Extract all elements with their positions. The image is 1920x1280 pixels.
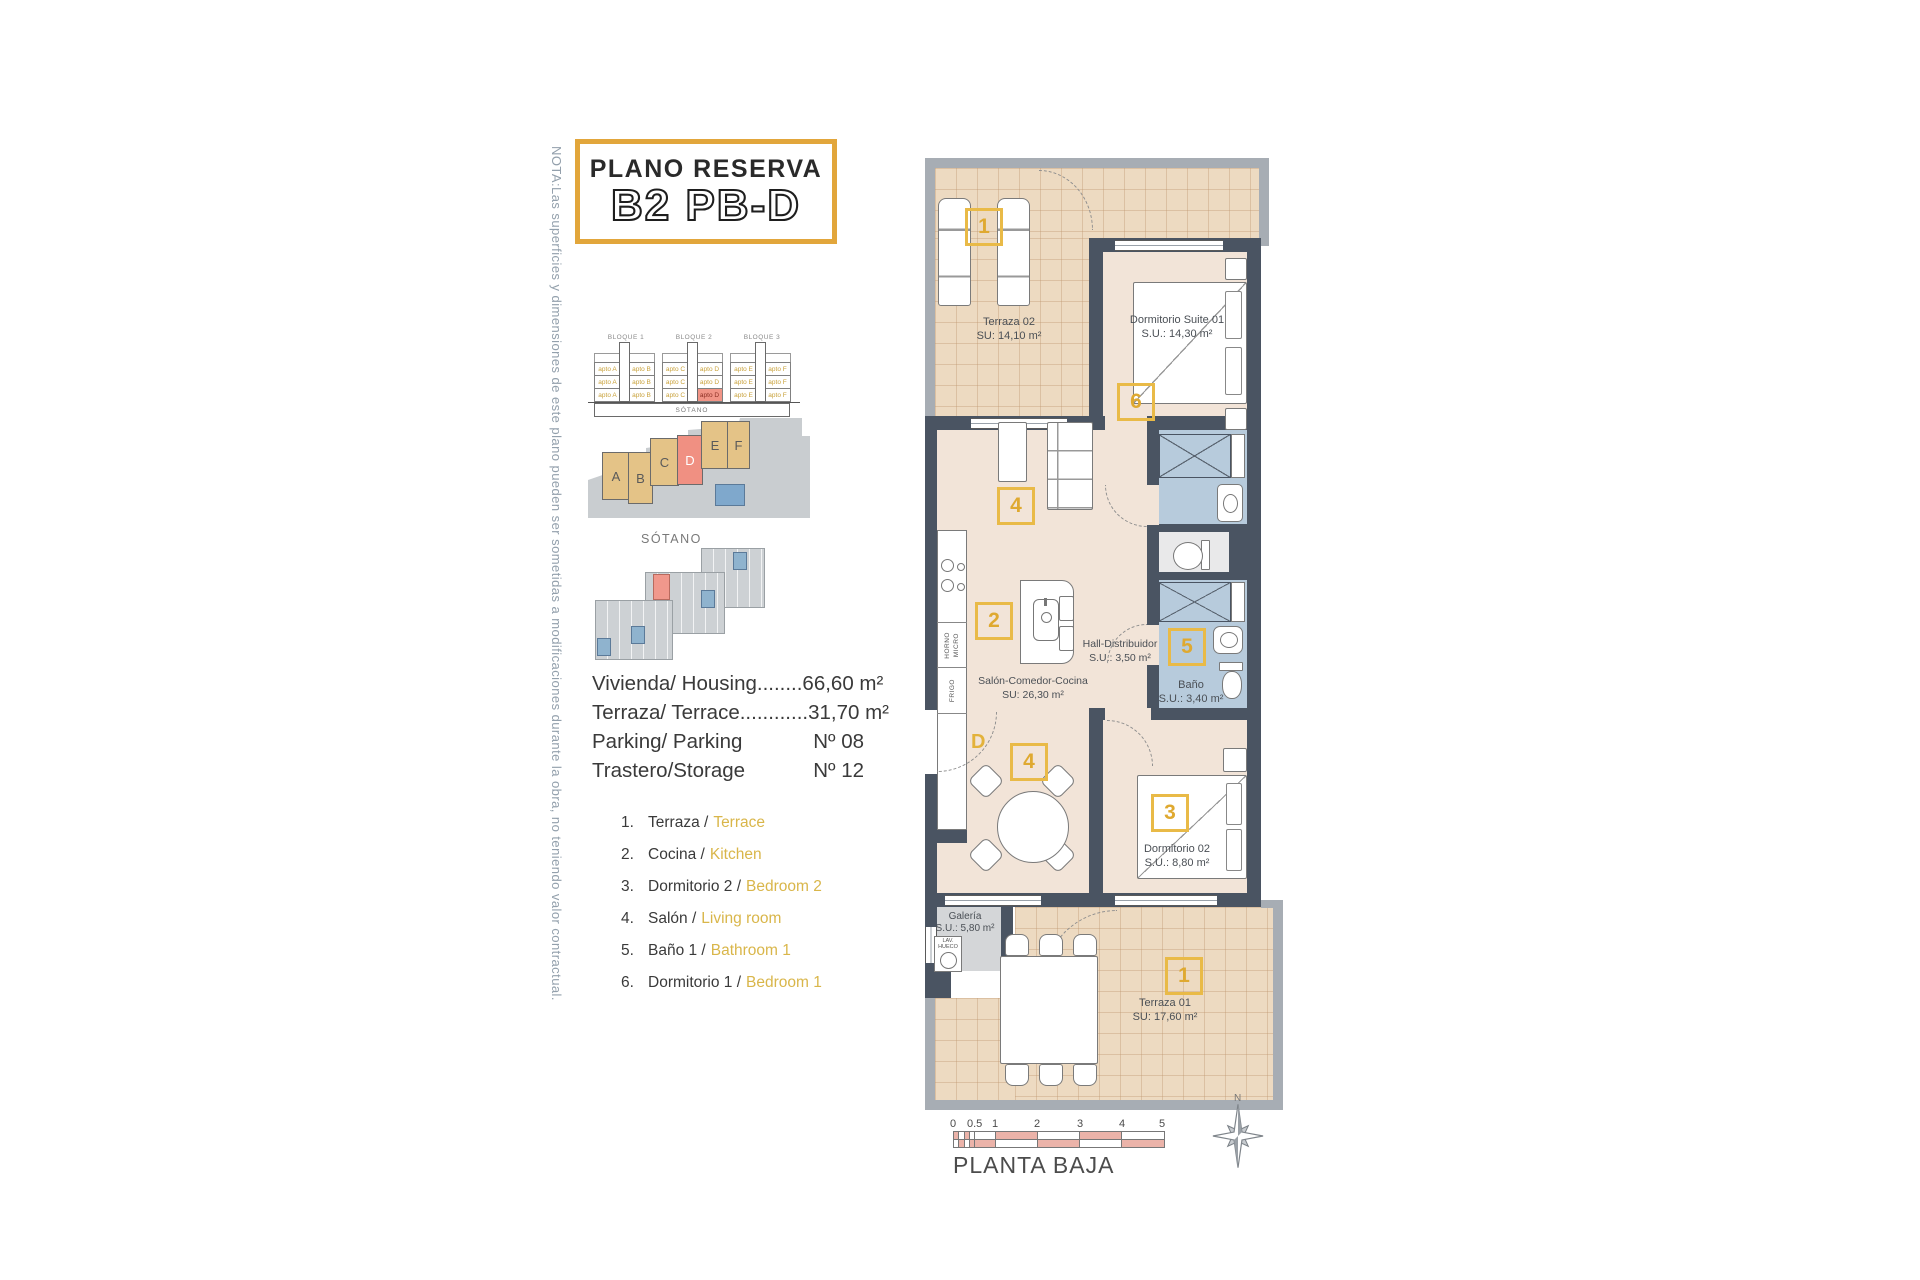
room-area: S.U.: 14,30 m² — [1127, 327, 1227, 341]
legend-number: 1. — [621, 814, 648, 832]
apto-cell: apto E — [730, 375, 757, 389]
chair — [1005, 934, 1029, 956]
marker-terraza: 1 — [965, 208, 1003, 246]
apto-cell: apto E — [730, 388, 757, 402]
bar-stool — [1059, 596, 1074, 621]
basin — [1223, 494, 1238, 513]
island-sink — [1033, 599, 1059, 641]
stair-tower — [755, 342, 766, 402]
stair-tower — [687, 342, 698, 402]
apto-cell: apto A — [594, 375, 621, 389]
apto-cell: apto B — [628, 362, 655, 376]
legend-en: Living room — [701, 910, 781, 928]
room-legend: 1. Terraza / Terrace 2. Cocina / Kitchen… — [621, 814, 822, 1006]
marker-dormitorio1: 6 — [1117, 383, 1155, 421]
legend-en: Bedroom 1 — [746, 974, 822, 992]
room-name: Salón-Comedor-Cocina — [973, 675, 1093, 689]
site-block-a: A — [602, 452, 630, 500]
basin — [1220, 632, 1238, 648]
room-name: Terraza 01 — [1113, 996, 1217, 1010]
scale-bar-graphic — [953, 1131, 1165, 1148]
scale-tick: 5 — [1159, 1118, 1165, 1130]
elevation-bloque-3: BLOQUE 3 apto E apto E apto E apto F apt… — [730, 334, 794, 402]
elevation-row: BLOQUE 1 apto A apto A apto A apto B apt… — [588, 334, 800, 402]
marker-terraza01: 1 — [1165, 957, 1203, 995]
apto-cell: apto F — [764, 362, 791, 376]
legend-item-bano1: 5. Baño 1 / Bathroom 1 — [621, 942, 822, 960]
site-block-e: E — [701, 421, 729, 469]
legend-en: Bathroom 1 — [711, 942, 791, 960]
sofa — [1047, 422, 1093, 510]
room-area: SU: 14,10 m² — [959, 329, 1059, 343]
legend-es: Salón / — [648, 910, 696, 928]
elevation-diagram: BLOQUE 1 apto A apto A apto A apto B apt… — [588, 334, 800, 417]
legend-en: Kitchen — [710, 846, 762, 864]
window — [945, 895, 1041, 906]
room-area: SU: 17,60 m² — [1113, 1010, 1217, 1024]
pillow — [1225, 291, 1242, 339]
sotano-plan: SÓTANO — [583, 528, 815, 668]
scale-ticks: 0 0.5 1 2 3 4 5 — [953, 1118, 1165, 1131]
scale-tick: 2 — [1034, 1118, 1040, 1130]
legend-number: 4. — [621, 910, 648, 928]
apto-cell: apto A — [594, 388, 621, 402]
stairs-block — [701, 590, 715, 608]
legend-item-terraza: 1. Terraza / Terrace — [621, 814, 822, 832]
room-area: S.U.: 8,80 m² — [1125, 856, 1229, 870]
apto-cell: apto B — [628, 388, 655, 402]
room-name: Baño — [1141, 678, 1241, 692]
room-area: S.U.: 5,80 m² — [929, 923, 1001, 935]
burner — [957, 563, 965, 571]
room-name: Dormitorio Suite 01 — [1127, 313, 1227, 327]
legend-es: Baño 1 / — [648, 942, 706, 960]
room-label-terraza01: Terraza 01 SU: 17,60 m² — [1113, 996, 1217, 1025]
burner — [941, 559, 954, 572]
legend-en: Bedroom 2 — [746, 878, 822, 896]
wall-segment — [1247, 238, 1261, 907]
chair — [1005, 1064, 1029, 1086]
burner — [957, 583, 965, 591]
legend-item-salon: 4. Salón / Living room — [621, 910, 822, 928]
wardrobe-panel — [1231, 434, 1245, 478]
floor-name: PLANTA BAJA — [953, 1152, 1114, 1179]
chair — [1073, 1064, 1097, 1086]
site-plan: A B C D E F — [588, 418, 810, 544]
storage-label: Trastero/Storage — [592, 759, 745, 788]
room-label-galeria: Galería S.U.: 5,80 m² — [929, 911, 1001, 935]
entrance-opening — [925, 710, 937, 774]
oven-micro-unit: HORNO MICRO — [937, 622, 967, 668]
terrace-wall — [1273, 900, 1283, 1110]
door-opening — [1147, 485, 1159, 525]
terrace-area: Terraza/ Terrace............31,70 m² — [592, 701, 889, 730]
room-name: Terraza 02 — [959, 315, 1059, 329]
window — [1115, 240, 1223, 251]
fridge-unit: FRIGO — [937, 668, 967, 714]
legend-es: Dormitorio 1 / — [648, 974, 741, 992]
chair — [1039, 1064, 1063, 1086]
legend-item-dormitorio1: 6. Dormitorio 1 / Bedroom 1 — [621, 974, 822, 992]
legend-es: Terraza / — [648, 814, 708, 832]
stair-tower — [619, 342, 630, 402]
legend-es: Dormitorio 2 / — [648, 878, 741, 896]
floor-plan: 1 Terraza 02 SU: 14,10 m² Dormitorio Sui… — [925, 130, 1295, 1118]
scale-tick: 4 — [1119, 1118, 1125, 1130]
sotano-bar: SÓTANO — [594, 403, 790, 417]
wardrobe-panel — [1231, 582, 1245, 622]
nightstand — [1223, 748, 1247, 772]
site-block-c: C — [650, 438, 679, 486]
apto-cell: apto F — [764, 375, 791, 389]
scale-tick: 1 — [992, 1118, 998, 1130]
info-row-parking: Parking/ Parking Nº 08 — [592, 730, 864, 759]
pillow — [1226, 783, 1242, 825]
apto-cell: apto C — [662, 375, 689, 389]
terrace-wall — [1259, 158, 1269, 246]
site-block-f: F — [727, 421, 750, 469]
info-row-storage: Trastero/Storage Nº 12 — [592, 759, 864, 788]
nightstand — [1225, 258, 1247, 280]
legend-item-cocina: 2. Cocina / Kitchen — [621, 846, 822, 864]
wall-segment — [1089, 708, 1103, 907]
chair — [1073, 934, 1097, 956]
room-label-dorm02: Dormitorio 02 S.U.: 8,80 m² — [1125, 842, 1229, 871]
compass: N — [1205, 1093, 1271, 1169]
burner — [941, 579, 954, 592]
terrace-wall — [925, 158, 935, 416]
sotano-label: SÓTANO — [641, 532, 702, 546]
apto-cell: apto C — [662, 362, 689, 376]
room-name: Dormitorio 02 — [1125, 842, 1229, 856]
pillow — [1225, 347, 1242, 395]
oven-label: HORNO — [944, 632, 951, 659]
room-label-salon: Salón-Comedor-Cocina SU: 26,30 m² — [973, 675, 1093, 702]
site-block-d-highlighted: D — [677, 435, 703, 485]
storage-number: Nº 12 — [813, 759, 864, 788]
terrace-wall — [1261, 900, 1283, 908]
wall-segment — [1147, 430, 1159, 720]
toilet — [1173, 542, 1203, 570]
room-area: S.U.: 3,40 m² — [1141, 692, 1241, 706]
nightstand — [1225, 408, 1247, 430]
marker-bano: 5 — [1168, 628, 1206, 666]
apto-cell: apto A — [594, 362, 621, 376]
wall-segment — [925, 416, 937, 907]
sink-drain — [1041, 612, 1052, 623]
terrace-wall — [925, 158, 1269, 168]
pool — [715, 484, 745, 506]
marker-salon-dining: 4 — [1010, 743, 1048, 781]
title-box: PLANO RESERVA B2 PB-D — [575, 139, 837, 244]
wall-segment — [925, 968, 951, 998]
wardrobe — [1159, 582, 1231, 622]
unit-code: B2 PB-D — [611, 184, 801, 228]
stairs-block — [597, 638, 611, 656]
apto-cell: apto B — [628, 375, 655, 389]
legend-number: 2. — [621, 846, 648, 864]
room-label-terraza02: Terraza 02 SU: 14,10 m² — [959, 315, 1059, 344]
wall-segment — [937, 830, 967, 843]
apto-cell: apto F — [764, 388, 791, 402]
window — [1115, 895, 1217, 906]
micro-label: MICRO — [953, 633, 960, 657]
room-area: SU: 26,30 m² — [973, 689, 1093, 703]
wall-segment — [1089, 238, 1103, 420]
scale-tick: 3 — [1077, 1118, 1083, 1130]
washer-label-line2: HUECO — [935, 944, 961, 950]
room-label-suite: Dormitorio Suite 01 S.U.: 14,30 m² — [1127, 313, 1227, 342]
wall-segment — [1159, 572, 1247, 580]
plano-reserva-title: PLANO RESERVA — [590, 155, 823, 184]
disclaimer-note: NOTA:Las superficies y dimensiones de es… — [549, 146, 564, 1061]
legend-number: 3. — [621, 878, 648, 896]
washbasin — [1213, 626, 1243, 654]
dining-table-round — [997, 791, 1069, 863]
page: NOTA:Las superficies y dimensiones de es… — [0, 0, 1920, 1280]
legend-number: 6. — [621, 974, 648, 992]
housing-area: Vivienda/ Housing........66,60 m² — [592, 672, 883, 701]
legend-item-dormitorio2: 3. Dormitorio 2 / Bedroom 2 — [621, 878, 822, 896]
apto-cell: apto D — [696, 375, 723, 389]
scale-bar: 0 0.5 1 2 3 4 5 PLANTA BAJA — [953, 1118, 1165, 1178]
parking-number: Nº 08 — [813, 730, 864, 759]
marker-dormitorio2: 3 — [1151, 794, 1189, 832]
toilet-tank — [1219, 662, 1243, 671]
coffee-table — [998, 422, 1027, 482]
washer-drum — [940, 952, 957, 969]
apto-cell: apto D — [696, 362, 723, 376]
cooktop — [937, 555, 967, 600]
terrace-wall — [925, 985, 935, 1110]
washer-label: LAV. HUECO — [935, 938, 961, 951]
apto-cell-highlighted: apto D — [696, 388, 723, 402]
surfaces-info: Vivienda/ Housing........66,60 m² Terraz… — [592, 672, 864, 788]
legend-en: Terrace — [713, 814, 765, 832]
stairs-block — [631, 626, 645, 644]
legend-es: Cocina / — [648, 846, 705, 864]
apto-cell: apto E — [730, 362, 757, 376]
elevation-bloque-2: BLOQUE 2 apto C apto C apto C apto D apt… — [662, 334, 726, 402]
door-opening — [1105, 708, 1151, 720]
parking-highlight — [653, 574, 670, 600]
scale-tick: 0.5 — [967, 1118, 982, 1130]
bar-stool — [1059, 626, 1074, 651]
chair — [1039, 934, 1063, 956]
elevation-bloque-1: BLOQUE 1 apto A apto A apto A apto B apt… — [594, 334, 658, 402]
parking-label: Parking/ Parking — [592, 730, 742, 759]
compass-rose-icon — [1205, 1103, 1271, 1169]
apto-cell: apto C — [662, 388, 689, 402]
dining-table — [1000, 956, 1098, 1064]
scale-tick: 0 — [950, 1118, 956, 1130]
kitchen-island — [1020, 580, 1074, 664]
room-name: Galería — [929, 911, 1001, 923]
info-row-housing: Vivienda/ Housing........66,60 m² — [592, 672, 864, 701]
stairs-block — [733, 552, 747, 570]
washing-machine: LAV. HUECO — [934, 936, 962, 972]
marker-salon: 4 — [997, 487, 1035, 525]
room-label-bano: Baño S.U.: 3,40 m² — [1141, 678, 1241, 707]
washbasin — [1217, 484, 1243, 522]
marker-cocina: 2 — [975, 602, 1013, 640]
wardrobe — [1159, 434, 1231, 478]
info-row-terrace: Terraza/ Terrace............31,70 m² — [592, 701, 864, 730]
fridge-label: FRIGO — [949, 679, 956, 702]
wall-segment — [1159, 524, 1247, 532]
tap — [1044, 598, 1047, 606]
legend-number: 5. — [621, 942, 648, 960]
